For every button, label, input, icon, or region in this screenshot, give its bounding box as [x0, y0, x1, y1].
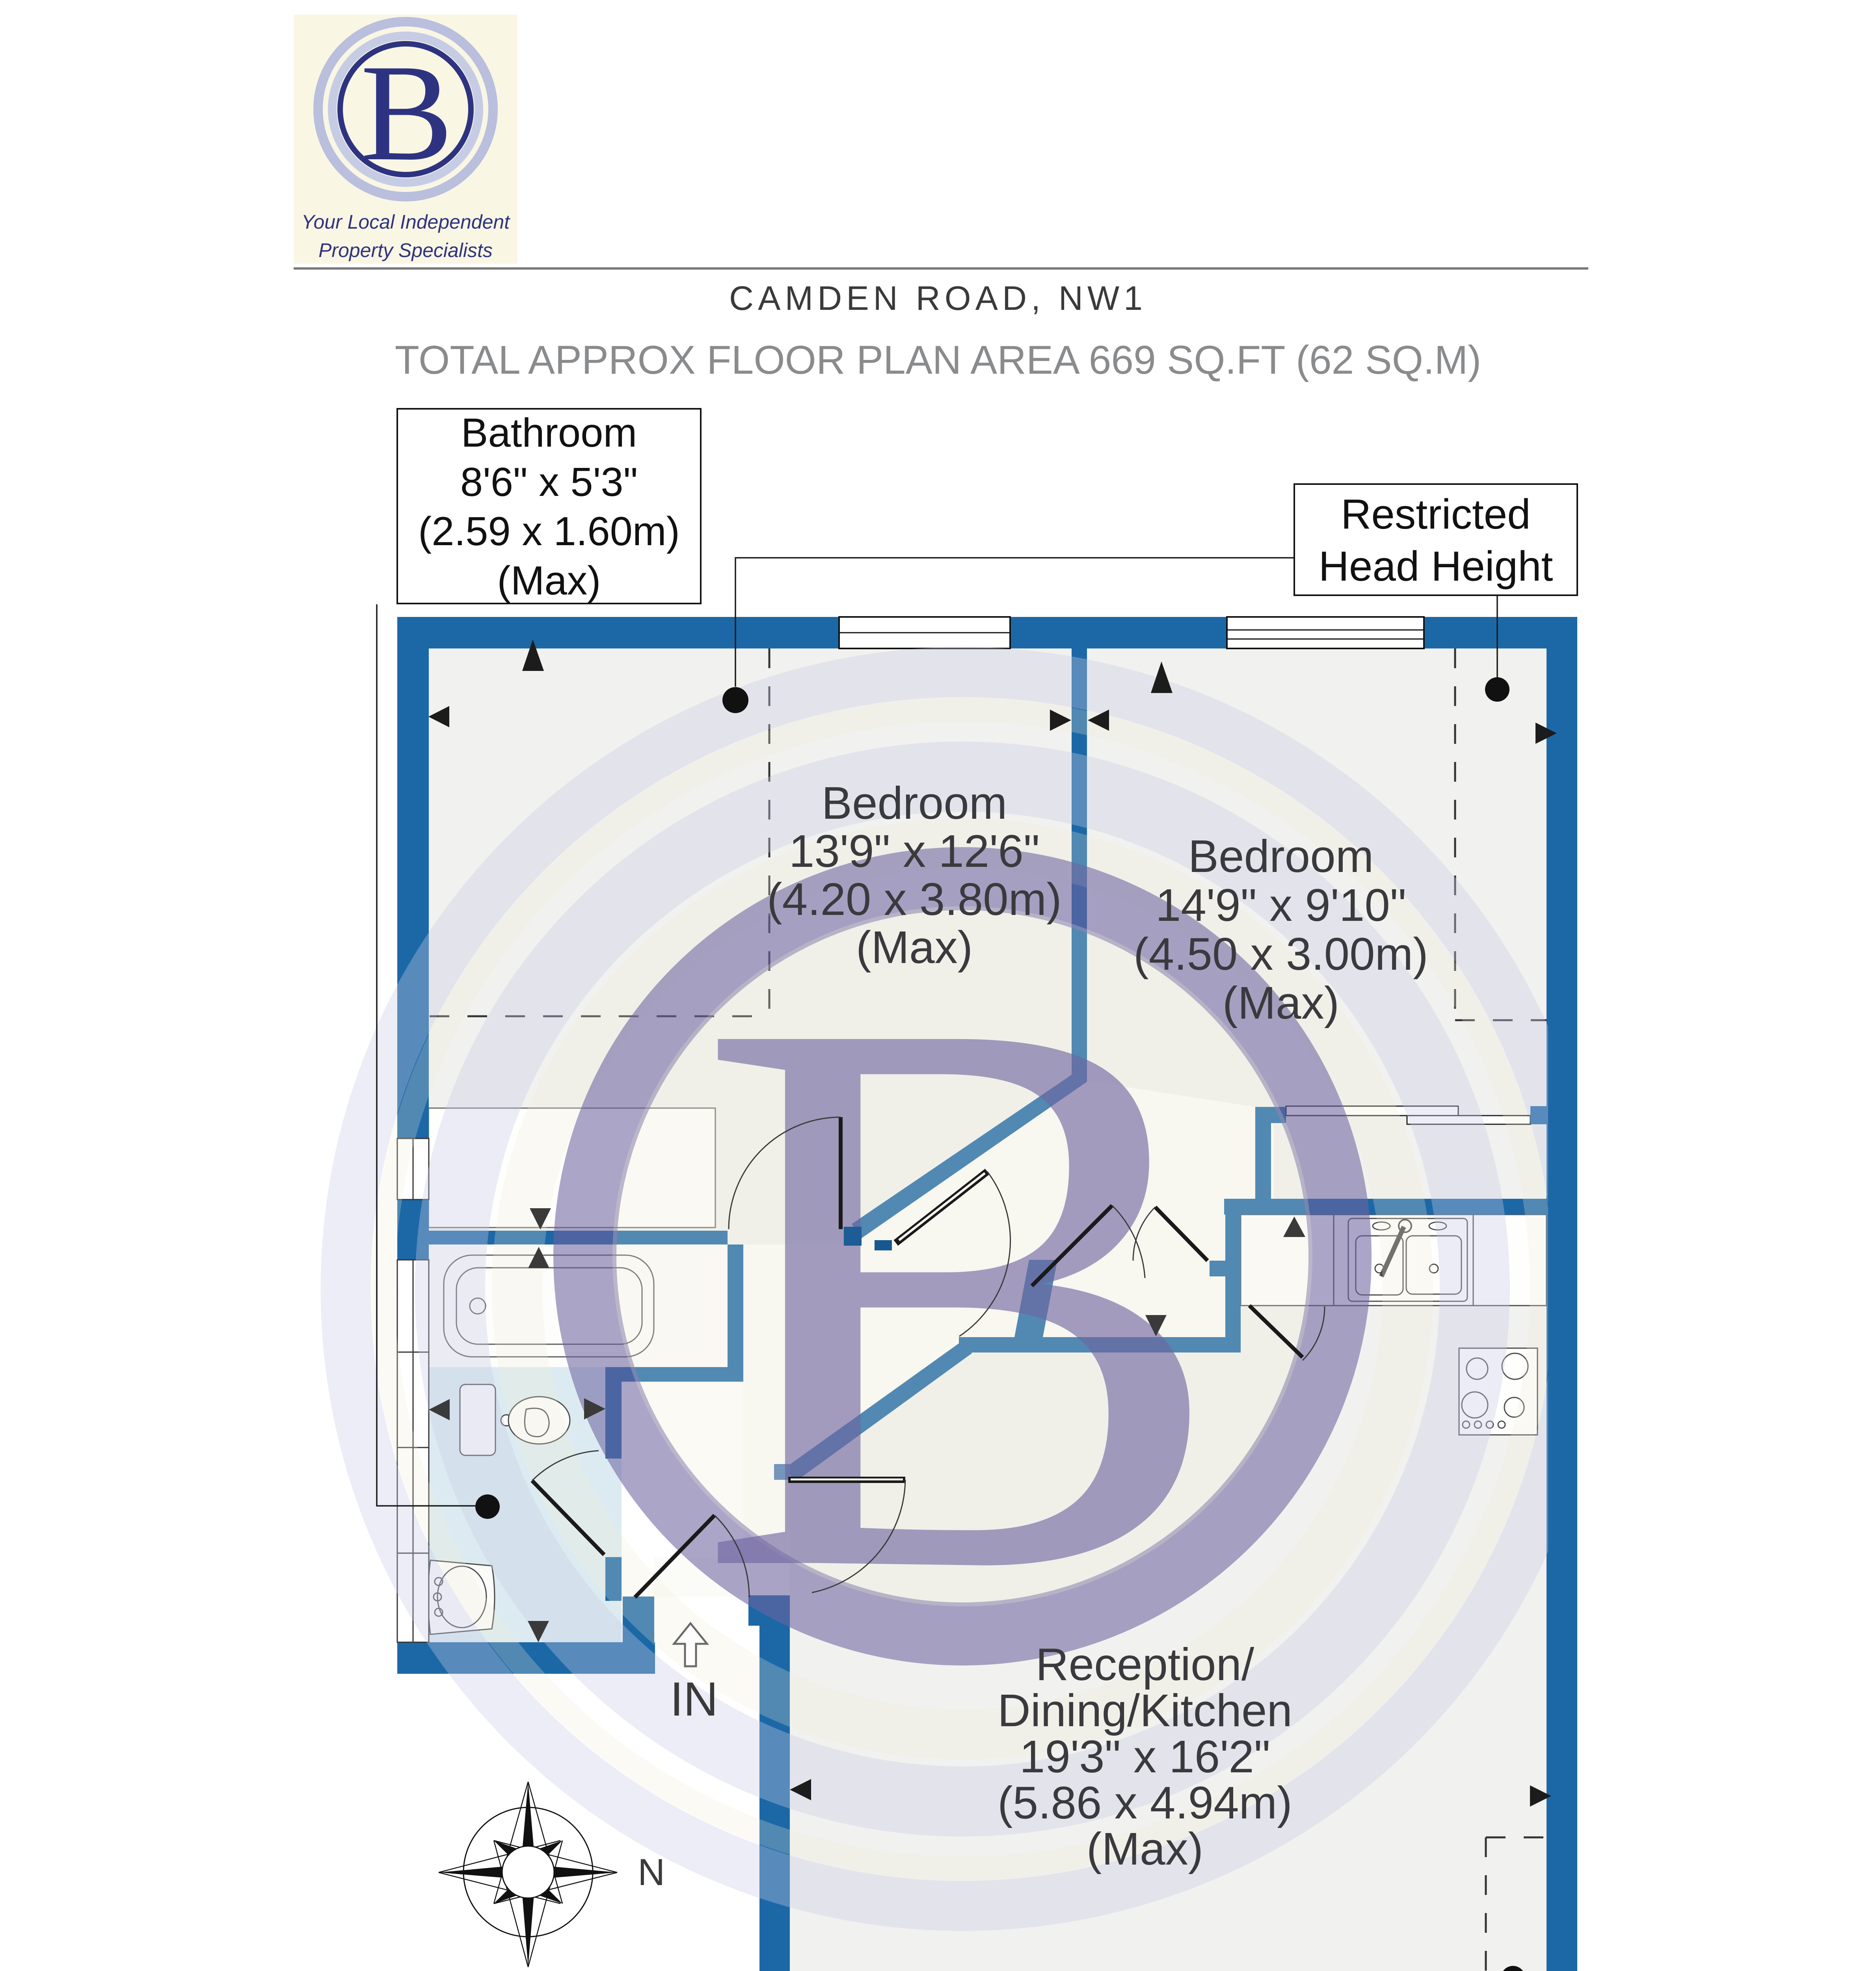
svg-text:N: N: [638, 1851, 665, 1893]
svg-text:(4.20 x 3.80m): (4.20 x 3.80m): [767, 874, 1062, 925]
svg-text:8'6" x 5'3": 8'6" x 5'3": [460, 459, 638, 505]
svg-text:13'9" x 12'6": 13'9" x 12'6": [789, 825, 1040, 877]
svg-text:Property Specialists: Property Specialists: [318, 239, 493, 261]
svg-text:(2.59 x 1.60m): (2.59 x 1.60m): [418, 509, 680, 554]
svg-text:(5.86 x 4.94m): (5.86 x 4.94m): [998, 1777, 1292, 1828]
svg-text:14'9" x 9'10": 14'9" x 9'10": [1156, 879, 1406, 931]
svg-text:Head Height: Head Height: [1319, 542, 1553, 590]
svg-text:(Max): (Max): [1223, 977, 1339, 1028]
svg-text:Reception/: Reception/: [1036, 1639, 1254, 1690]
svg-text:19'3" x 16'2": 19'3" x 16'2": [1020, 1731, 1270, 1782]
svg-text:B: B: [361, 36, 453, 190]
svg-text:Bedroom: Bedroom: [822, 777, 1007, 829]
svg-text:B: B: [695, 850, 1228, 1736]
svg-text:(Max): (Max): [856, 922, 973, 973]
svg-text:(Max): (Max): [1087, 1823, 1203, 1874]
svg-text:Bathroom: Bathroom: [461, 410, 637, 455]
svg-text:Bedroom: Bedroom: [1188, 831, 1374, 882]
svg-text:IN: IN: [670, 1672, 718, 1726]
svg-text:CAMDEN ROAD, NW1: CAMDEN ROAD, NW1: [729, 279, 1147, 317]
svg-text:(4.50 x 3.00m): (4.50 x 3.00m): [1133, 928, 1428, 980]
svg-text:Restricted: Restricted: [1341, 490, 1531, 538]
svg-text:TOTAL APPROX FLOOR PLAN AREA 6: TOTAL APPROX FLOOR PLAN AREA 669 SQ.FT (…: [395, 337, 1481, 382]
svg-text:Dining/Kitchen: Dining/Kitchen: [998, 1685, 1292, 1736]
svg-text:(Max): (Max): [497, 558, 601, 603]
svg-text:Your Local Independent: Your Local Independent: [301, 211, 510, 233]
